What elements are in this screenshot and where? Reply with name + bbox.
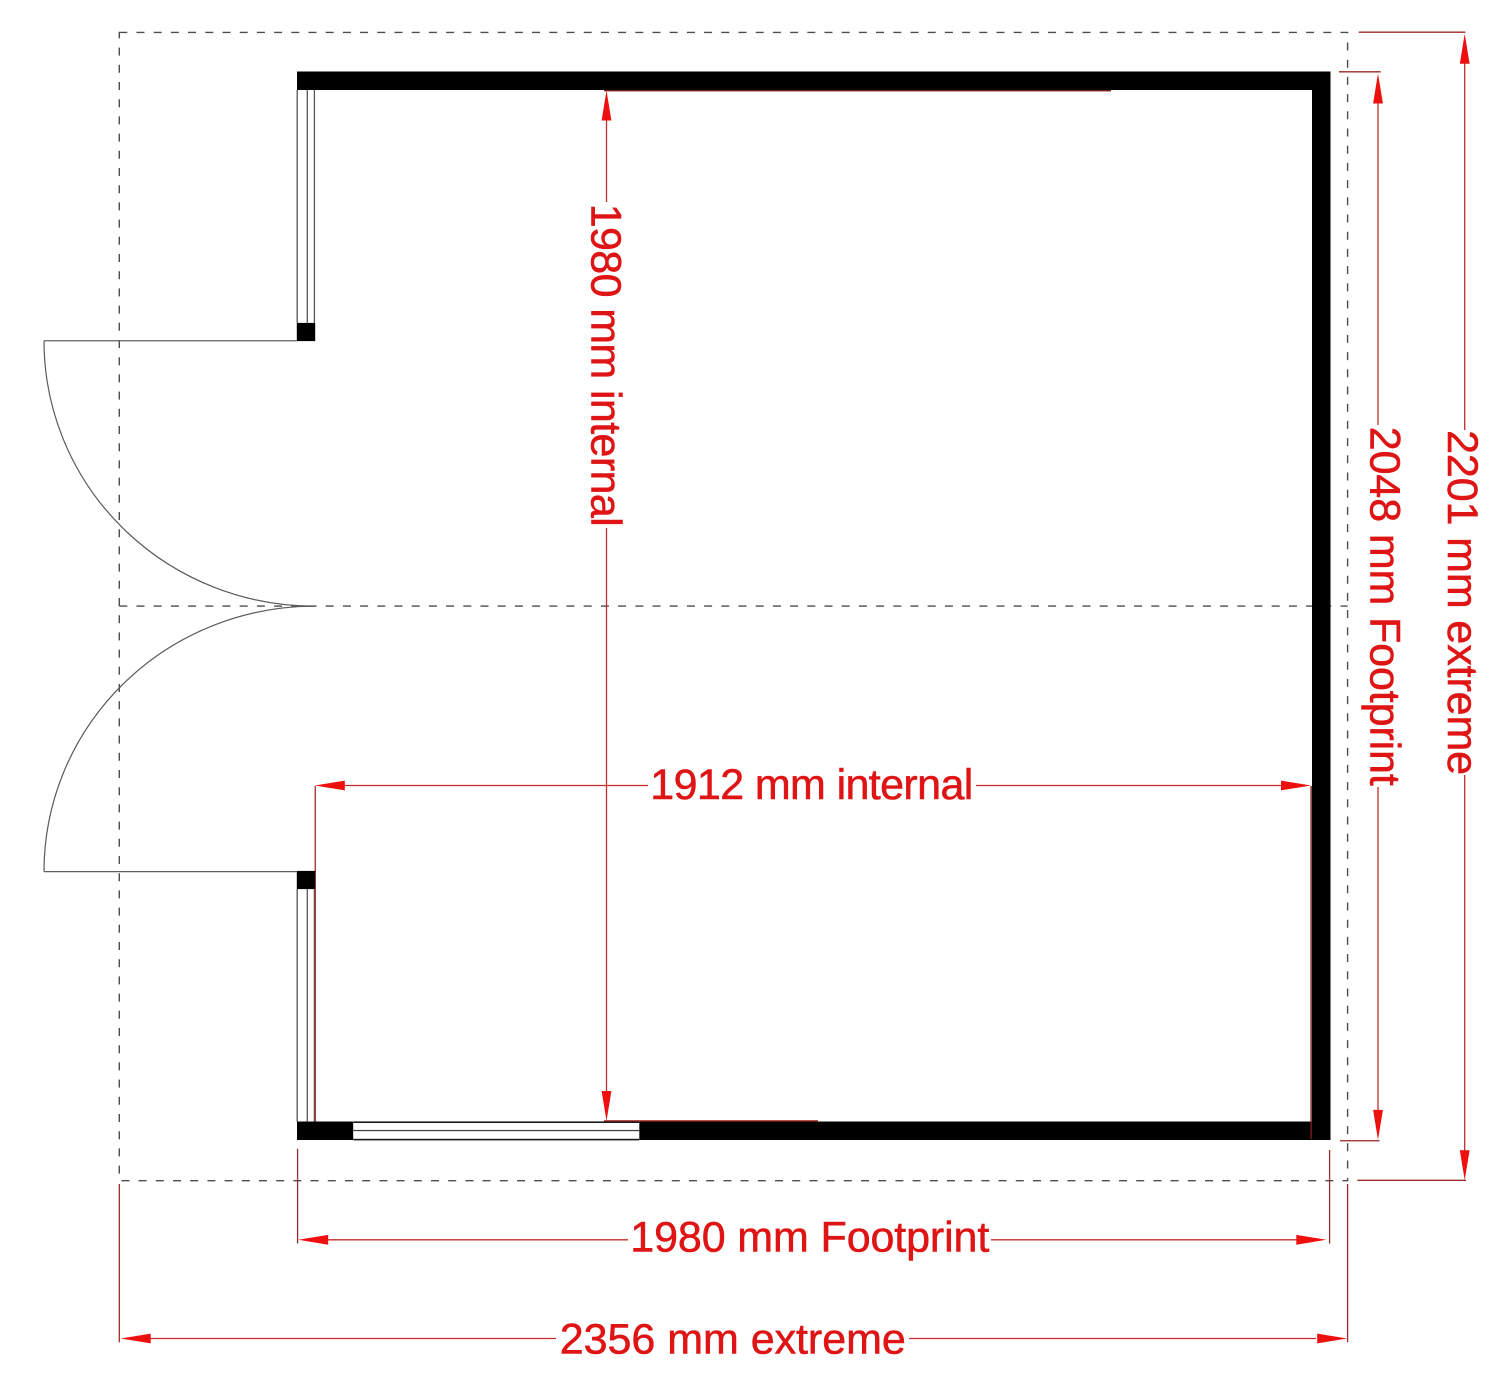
- svg-text:2201 mm extreme: 2201 mm extreme: [1438, 430, 1486, 775]
- svg-text:2356 mm extreme: 2356 mm extreme: [560, 1315, 906, 1363]
- svg-text:2048 mm Footprint: 2048 mm Footprint: [1361, 427, 1409, 786]
- svg-text:1980 mm internal: 1980 mm internal: [582, 204, 630, 527]
- svg-text:1912 mm internal: 1912 mm internal: [650, 761, 973, 809]
- svg-text:1980 mm Footprint: 1980 mm Footprint: [630, 1214, 989, 1262]
